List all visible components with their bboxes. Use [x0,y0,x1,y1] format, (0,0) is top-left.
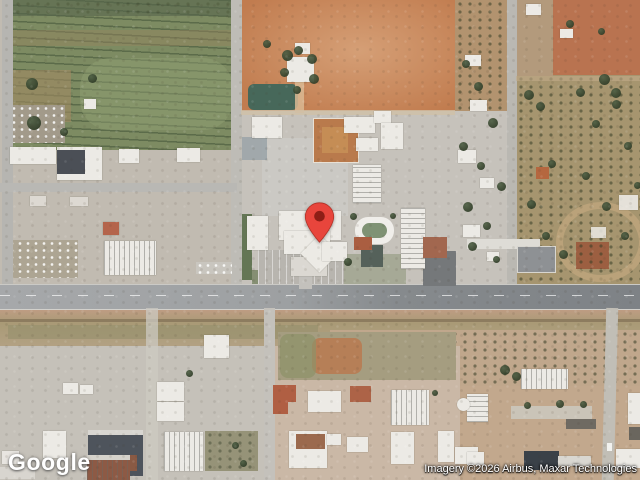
tree [282,50,293,61]
building [204,335,229,358]
satellite-map-tile[interactable]: Google Imagery ©2026 Airbus, Maxar Techn… [0,0,640,480]
terrain-field-light-wash [80,58,233,130]
building [381,123,403,149]
tree [240,460,247,467]
tree [576,88,585,97]
vehicle-dot [607,443,612,451]
building-dark [629,427,640,440]
building-shed [63,383,78,394]
building [10,147,56,164]
tree [612,100,621,109]
tree [542,232,550,240]
terrain-bottom-orange-patch [312,338,362,374]
tree [527,200,536,209]
location-pin-icon[interactable] [304,202,335,243]
railway-line [0,319,640,322]
pool-inner-green [362,223,387,238]
building-rusty [576,242,609,269]
tree [559,250,568,259]
building [344,117,375,133]
building-house [252,117,282,138]
building [438,431,454,462]
building-warehouse [467,394,488,422]
tree [463,202,473,212]
building-warehouse-ridged [521,369,568,389]
truck-row [196,262,232,274]
building-shed [30,196,46,206]
tree [474,82,483,91]
tree [624,142,632,150]
tree [621,232,629,240]
building-warehouse [164,432,203,471]
building-house [560,29,573,38]
building-house [526,4,541,15]
road-left-horizontal [0,183,237,192]
building-terracotta [350,386,371,402]
building-school-west [247,216,268,250]
tree [497,182,506,191]
tree [488,118,498,128]
pin-dot [314,211,325,222]
storage-tank [457,398,470,411]
tree [26,78,38,90]
tree [524,90,534,100]
building [591,227,606,238]
tree [500,365,510,375]
tree [60,128,68,136]
tree [599,74,610,85]
building [347,437,368,452]
tree [634,182,640,189]
building-grey-roof [517,246,556,273]
building-warehouse [104,241,156,275]
building-warehouse [401,208,425,269]
pin-body [305,203,333,242]
imagery-attribution: Imagery ©2026 Airbus, Maxar Technologies [424,463,637,475]
building-long-grey [511,406,592,419]
building-brown-roof [296,434,325,449]
tree [548,160,556,168]
tree [483,222,491,230]
google-logo[interactable]: Google [8,449,91,476]
building-shed [70,197,88,206]
building [119,149,139,163]
tree [459,142,468,151]
tree [582,172,590,180]
tree [27,116,41,130]
building [177,148,200,162]
building [322,242,347,261]
building [157,382,184,401]
building-rusty-roof [87,455,130,480]
building-terracotta [536,167,549,179]
farm-lawn [248,84,298,110]
building-dark-roof [57,150,85,174]
tree [462,60,470,68]
building-house [458,150,476,163]
tree [598,28,605,35]
building-warehouse [353,165,381,203]
tree [344,258,352,266]
tree [293,86,301,94]
building-terracotta [103,222,119,235]
tree [309,74,319,84]
highway-center-dashes [0,295,640,296]
road-center-vertical [231,0,242,290]
building-shed [84,99,96,109]
tree [512,372,521,381]
tree [536,102,545,111]
road-topright-boundary [516,76,640,81]
building [374,111,391,123]
building-red-rows [423,237,447,258]
tree [524,402,531,409]
building [308,391,341,412]
tree [432,390,438,396]
terrain-green-lot-bottom [205,431,258,471]
tree [390,213,396,219]
tree [566,20,574,28]
terrain-red-dirt-field-topright [553,0,640,76]
tree [493,256,500,263]
tree [592,120,600,128]
tree [350,213,357,220]
building-house [480,178,494,188]
tree [556,400,564,408]
road-field-boundary [241,110,455,115]
building [356,138,378,151]
terrain-bottom-green-patch [280,334,316,378]
tree [580,401,587,408]
tree [232,442,239,449]
building-warehouse [391,390,429,425]
terrain-junkyard-above-highway [8,240,78,278]
building-dark-thin [566,419,596,429]
tree [263,40,271,48]
building-shed [327,434,341,445]
tree [477,162,485,170]
building-shed [80,385,93,394]
tree [468,242,477,251]
tree [88,74,97,83]
tree [602,202,611,211]
tree [307,54,317,64]
terrain-field-dark-top [13,0,233,16]
building-house [463,225,480,237]
tree [611,88,621,98]
highway [0,284,640,310]
tree [280,68,289,77]
building [391,432,414,464]
tree [294,46,303,55]
building-house [470,100,487,111]
building [157,402,184,421]
building-terracotta-l [273,397,288,414]
building [619,195,638,210]
building-terracotta [354,237,372,250]
building [628,393,640,424]
terrain-field-brown-band [13,30,233,46]
tree [186,370,193,377]
